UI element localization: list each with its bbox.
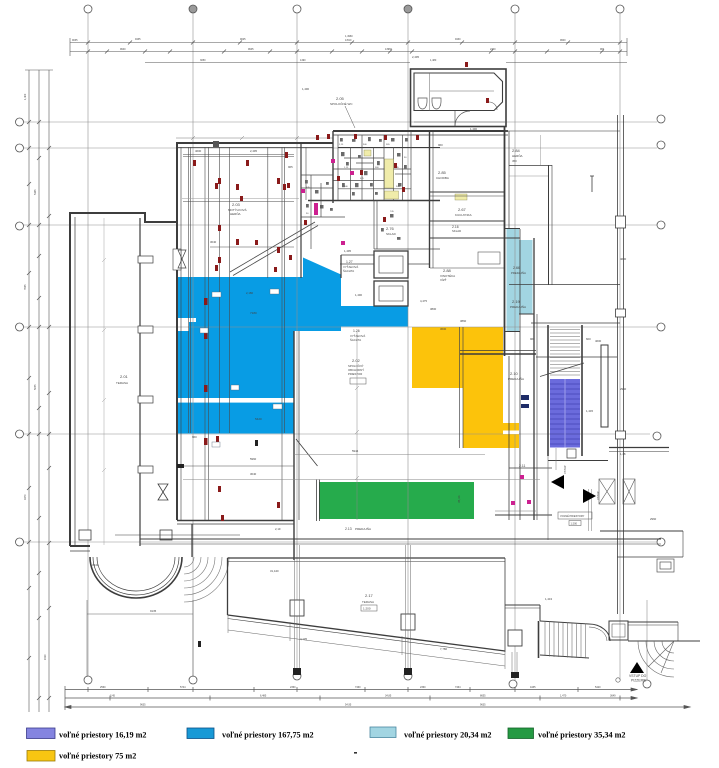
svg-text:3860: 3860: [460, 319, 467, 323]
svg-text:2.05: 2.05: [336, 96, 345, 101]
svg-text:2.76: 2.76: [386, 226, 395, 231]
svg-text:2360: 2360: [420, 686, 426, 689]
svg-text:9600: 9600: [560, 39, 566, 42]
svg-text:4600: 4600: [595, 339, 602, 343]
svg-text:9635: 9635: [480, 704, 486, 707]
svg-text:voľné priestory 35,34 m2: voľné priestory 35,34 m2: [538, 730, 626, 739]
svg-text:3600: 3600: [440, 327, 447, 331]
svg-text:PREDAJŇA: PREDAJŇA: [510, 304, 526, 309]
svg-text:4600: 4600: [620, 257, 627, 261]
svg-text:9430: 9430: [455, 38, 461, 41]
svg-text:7635: 7635: [24, 284, 27, 290]
svg-text:2360: 2360: [290, 686, 296, 689]
svg-text:7464: 7464: [455, 686, 461, 689]
svg-text:9035: 9035: [72, 39, 78, 42]
svg-text:4,475: 4,475: [420, 299, 427, 303]
svg-text:CHODBA: CHODBA: [436, 176, 449, 180]
svg-text:2.03: 2.03: [232, 202, 241, 207]
svg-text:SPOLOČNÉ WC: SPOLOČNÉ WC: [330, 101, 353, 106]
svg-text:1.27: 1.27: [346, 260, 353, 264]
svg-text:960: 960: [600, 48, 605, 51]
svg-text:VSTUP DO: VSTUP DO: [629, 674, 647, 678]
svg-text:960: 960: [192, 435, 197, 439]
svg-text:1:200: 1:200: [363, 607, 371, 611]
svg-text:VSTUP: VSTUP: [563, 465, 567, 474]
svg-text:voľné priestory 75 m2: voľné priestory 75 m2: [59, 752, 136, 761]
svg-text:9135: 9135: [150, 609, 157, 613]
svg-text:5960: 5960: [250, 457, 257, 461]
svg-text:1,490: 1,490: [470, 127, 477, 131]
svg-text:5744: 5744: [180, 686, 186, 689]
svg-text:1.26: 1.26: [353, 329, 360, 333]
svg-text:9635: 9635: [140, 704, 146, 707]
svg-text:TERASA: TERASA: [116, 381, 128, 385]
svg-text:1,4960: 1,4960: [345, 35, 353, 38]
svg-text:6,485: 6,485: [260, 695, 267, 698]
svg-text:VÍZŤ: VÍZŤ: [440, 277, 447, 282]
svg-text:2.84: 2.84: [512, 148, 521, 153]
svg-text:1,400: 1,400: [24, 93, 27, 100]
svg-text:4470: 4470: [24, 494, 27, 500]
svg-text:3040: 3040: [210, 240, 217, 244]
svg-text:5055: 5055: [34, 384, 37, 390]
svg-text:7,780: 7,780: [440, 647, 447, 651]
svg-text:2960: 2960: [650, 517, 657, 521]
svg-text:8655: 8655: [480, 695, 486, 698]
svg-text:VSTUP: VSTUP: [596, 491, 600, 500]
svg-text:1,443: 1,443: [545, 597, 552, 601]
svg-text:960: 960: [530, 337, 535, 341]
svg-text:35,34: 35,34: [457, 495, 461, 503]
svg-text:ŠACHTA: ŠACHTA: [350, 337, 361, 342]
svg-text:voľné priestory 16,19 m2: voľné priestory 16,19 m2: [59, 730, 147, 739]
svg-text:PIZZERIE: PIZZERIE: [631, 679, 647, 683]
svg-text:2960: 2960: [620, 387, 627, 391]
svg-text:SKLAD: SKLAD: [386, 232, 397, 236]
svg-text:450: 450: [512, 159, 517, 163]
svg-text:2.67: 2.67: [458, 207, 467, 212]
svg-text:960: 960: [438, 143, 443, 147]
svg-text:2.66: 2.66: [513, 266, 520, 270]
svg-text:voľné priestory 167,75 m2: voľné priestory 167,75 m2: [222, 730, 314, 739]
svg-text:voľné priestory 20,34 m2: voľné priestory 20,34 m2: [404, 730, 492, 739]
svg-text:1,495: 1,495: [344, 249, 351, 253]
svg-text:600: 600: [586, 337, 591, 341]
svg-text:2,180: 2,180: [246, 291, 253, 295]
svg-text:PREDAJŇA: PREDAJŇA: [511, 270, 526, 275]
svg-text:54,95: 54,95: [345, 704, 352, 707]
svg-text:1,470: 1,470: [560, 695, 567, 698]
svg-text:3800: 3800: [430, 307, 437, 311]
svg-text:2.19: 2.19: [512, 299, 521, 304]
svg-text:4600: 4600: [195, 149, 202, 153]
svg-text:7460: 7460: [355, 686, 361, 689]
svg-text:TERASA: TERASA: [362, 600, 374, 604]
svg-text:2.17: 2.17: [365, 593, 374, 598]
svg-text:7180: 7180: [250, 311, 257, 315]
svg-text:HERŇA: HERŇA: [230, 211, 241, 216]
svg-text:3050: 3050: [200, 59, 206, 62]
svg-text:HERŇA: HERŇA: [512, 153, 523, 158]
svg-text:4435: 4435: [530, 686, 536, 689]
svg-text:PREDAJŇA: PREDAJŇA: [355, 526, 371, 531]
svg-text:1,490: 1,490: [355, 293, 362, 297]
svg-text:2.88: 2.88: [443, 268, 452, 273]
svg-text:2.01: 2.01: [120, 374, 129, 379]
svg-text:5944: 5944: [352, 449, 359, 453]
svg-text:1,48: 1,48: [620, 452, 626, 456]
svg-text:SKLAD: SKLAD: [452, 229, 461, 233]
svg-text:3943: 3943: [92, 563, 99, 567]
svg-text:2.13: 2.13: [345, 527, 352, 531]
svg-text:ŠACHTA: ŠACHTA: [343, 268, 354, 273]
svg-text:34,85: 34,85: [385, 695, 392, 698]
svg-text:3649: 3649: [610, 695, 616, 698]
svg-text:3,45: 3,45: [110, 695, 115, 698]
svg-text:9645: 9645: [248, 48, 254, 51]
svg-text:13%0: 13%0: [345, 39, 352, 42]
svg-text:13960: 13960: [385, 48, 393, 51]
svg-text:5420: 5420: [255, 417, 262, 421]
svg-text:9025: 9025: [240, 38, 246, 41]
svg-text:965: 965: [288, 165, 293, 169]
svg-text:1,480: 1,480: [430, 59, 437, 62]
svg-text:KUCHYNKA: KUCHYNKA: [455, 213, 472, 217]
svg-text:5445: 5445: [34, 189, 37, 195]
svg-text:1,490: 1,490: [302, 87, 309, 91]
svg-text:2.85: 2.85: [438, 170, 447, 175]
svg-text:2.02: 2.02: [352, 358, 361, 363]
svg-text:4,135: 4,135: [300, 637, 307, 641]
svg-text:2,495: 2,495: [412, 55, 419, 59]
svg-text:9640: 9640: [120, 48, 126, 51]
svg-text:2560: 2560: [100, 686, 106, 689]
svg-text:5420: 5420: [595, 686, 601, 689]
svg-text:31,440: 31,440: [270, 569, 279, 573]
svg-text:2.11: 2.11: [519, 464, 525, 468]
svg-text:2.10: 2.10: [510, 371, 519, 376]
svg-text:1490: 1490: [300, 59, 306, 62]
svg-text:9435: 9435: [135, 38, 141, 41]
svg-text:PRIESTOR: PRIESTOR: [348, 372, 362, 376]
svg-text:1:200: 1:200: [571, 522, 578, 526]
svg-text:2,19: 2,19: [275, 527, 281, 531]
svg-text:1910: 1910: [44, 654, 47, 660]
svg-text:2400: 2400: [490, 48, 496, 51]
svg-text:3040: 3040: [250, 472, 257, 476]
svg-text:1,445: 1,445: [586, 409, 593, 413]
svg-text:PREDAJŇA: PREDAJŇA: [508, 376, 524, 381]
svg-text:2,495: 2,495: [250, 149, 257, 153]
